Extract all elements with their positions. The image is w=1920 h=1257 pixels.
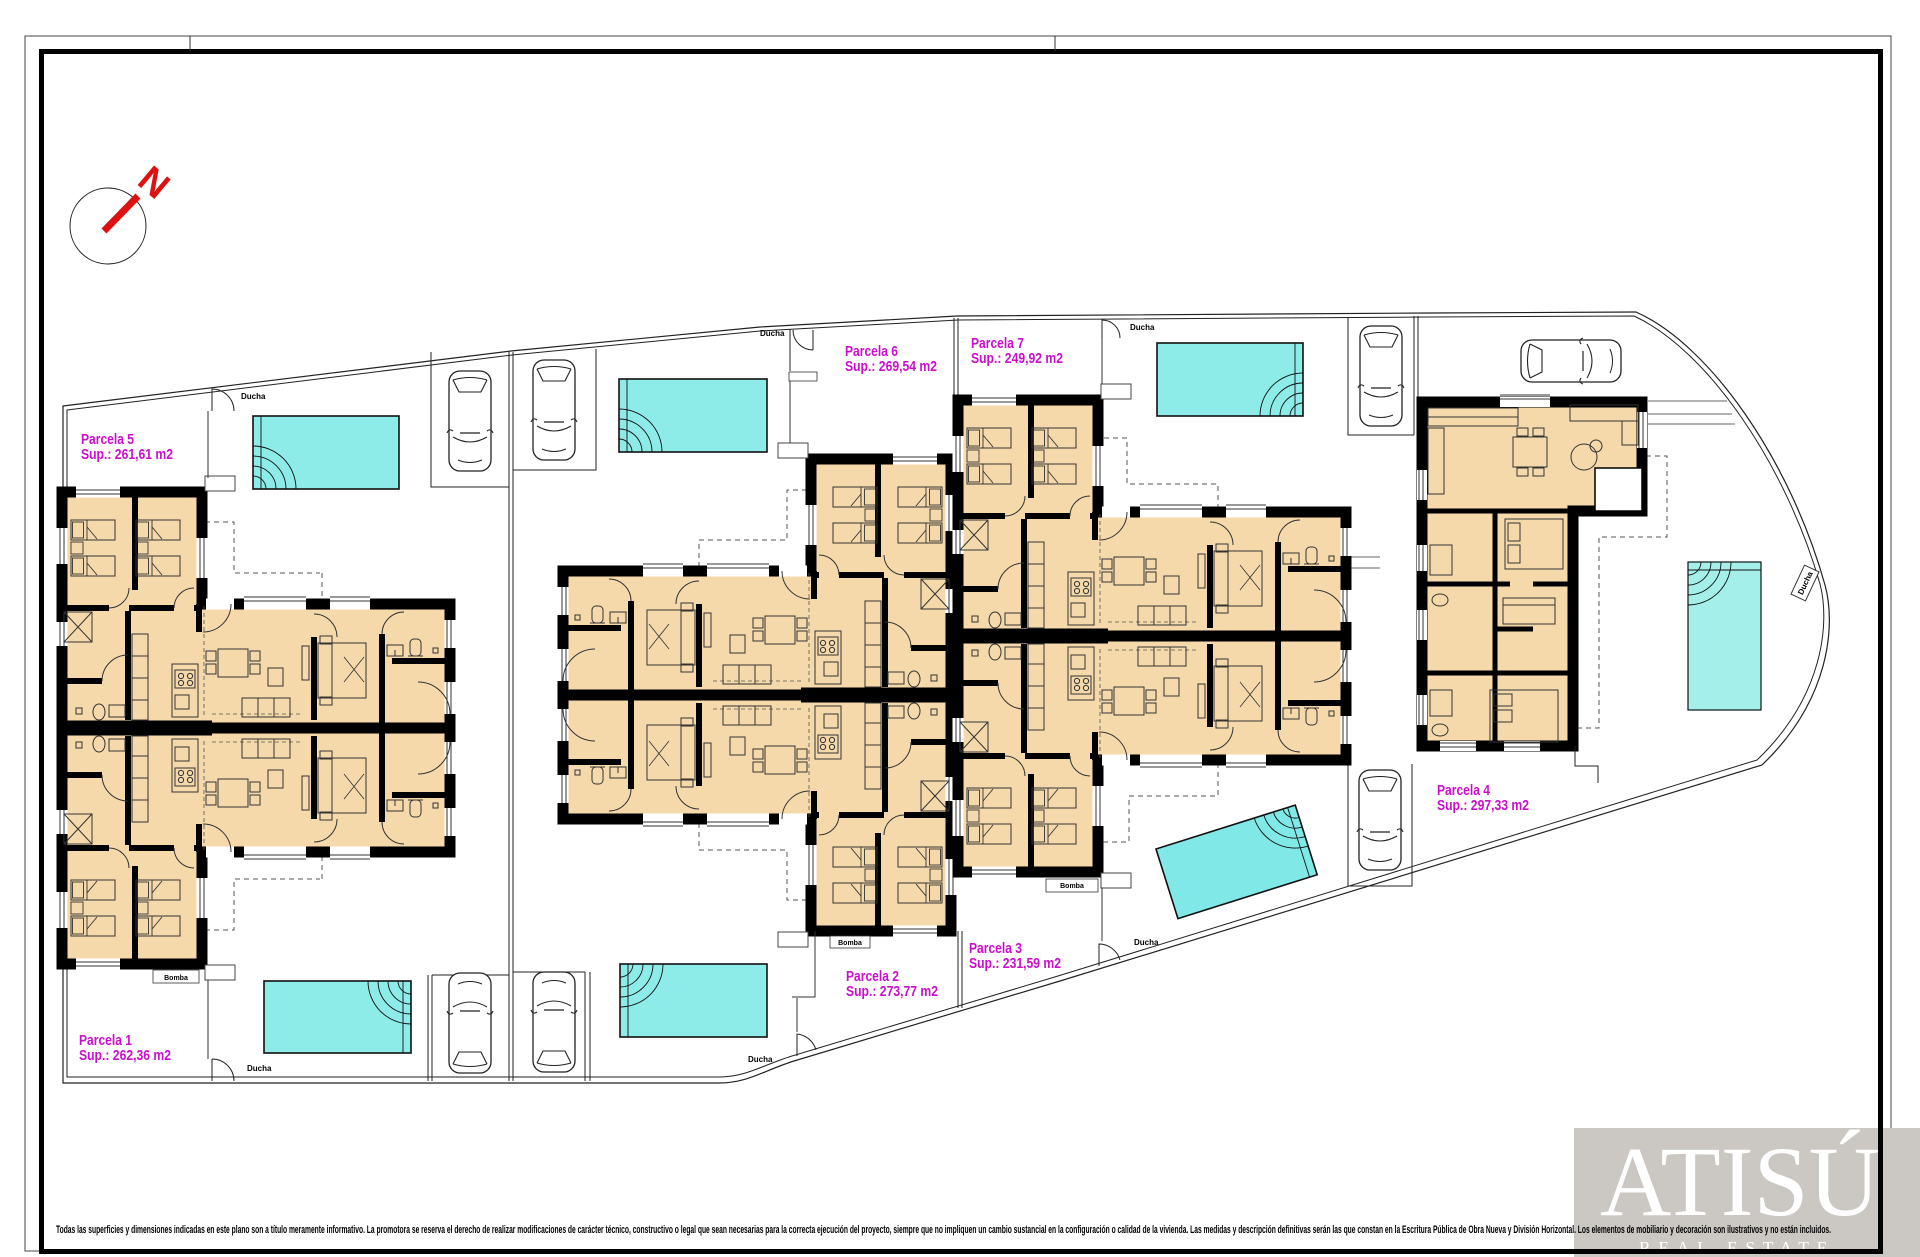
svg-text:Parcela 7: Parcela 7 (971, 336, 1024, 352)
svg-text:Parcela 1: Parcela 1 (79, 1033, 132, 1049)
svg-text:Ducha: Ducha (760, 329, 785, 338)
svg-text:Sup.: 269,54 m2: Sup.: 269,54 m2 (845, 359, 937, 375)
svg-text:Bomba: Bomba (838, 940, 862, 947)
svg-text:Sup.: 249,92 m2: Sup.: 249,92 m2 (971, 351, 1063, 367)
svg-text:Bomba: Bomba (1060, 883, 1084, 890)
svg-text:Sup.: 262,36 m2: Sup.: 262,36 m2 (79, 1048, 171, 1064)
svg-text:Todas las superficies y dimens: Todas las superficies y dimensiones indi… (56, 1224, 1831, 1236)
svg-text:Ducha: Ducha (1130, 323, 1155, 332)
svg-text:Ducha: Ducha (748, 1055, 773, 1064)
svg-text:Parcela 4: Parcela 4 (1437, 783, 1490, 799)
svg-text:Parcela 6: Parcela 6 (845, 344, 898, 360)
svg-text:REAL ESTATE: REAL ESTATE (1639, 1238, 1835, 1257)
svg-text:Parcela 5: Parcela 5 (81, 432, 134, 448)
svg-text:Bomba: Bomba (164, 975, 188, 982)
svg-text:Parcela 3: Parcela 3 (969, 941, 1022, 957)
svg-text:Ducha: Ducha (241, 392, 266, 401)
svg-text:Sup.: 261,61 m2: Sup.: 261,61 m2 (81, 447, 173, 463)
svg-text:Ducha: Ducha (1134, 938, 1159, 947)
svg-text:Sup.: 297,33 m2: Sup.: 297,33 m2 (1437, 798, 1529, 814)
svg-text:Parcela 2: Parcela 2 (846, 969, 899, 985)
svg-text:Sup.: 273,77 m2: Sup.: 273,77 m2 (846, 984, 938, 1000)
svg-text:ATISÚ: ATISÚ (1600, 1126, 1880, 1237)
svg-text:Sup.: 231,59 m2: Sup.: 231,59 m2 (969, 956, 1061, 972)
svg-text:Ducha: Ducha (247, 1064, 272, 1073)
